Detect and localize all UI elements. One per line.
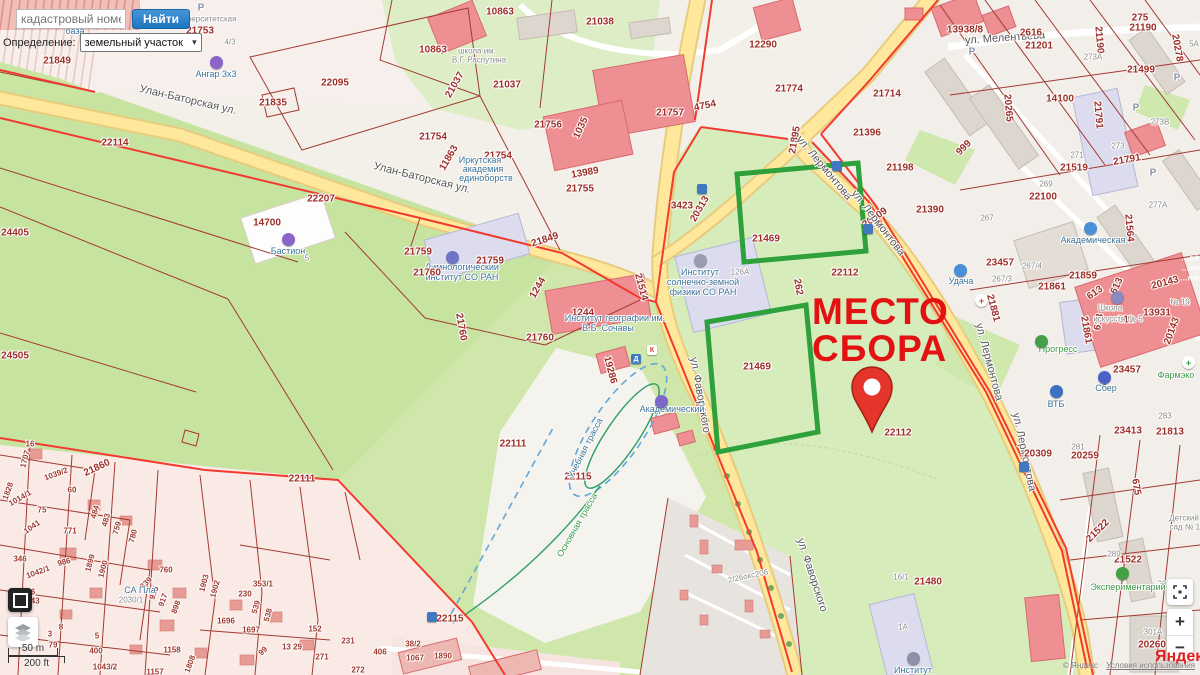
scale-meters: 50 m	[8, 648, 58, 656]
fullscreen-icon	[1173, 585, 1187, 599]
square-icon	[13, 593, 28, 608]
measure-tool-button[interactable]	[8, 588, 32, 612]
search-button[interactable]: Найти	[132, 9, 190, 29]
scale-feet: 200 ft	[8, 656, 65, 663]
map-canvas[interactable]	[0, 0, 1200, 675]
meeting-place-line2: СБОРА	[812, 330, 942, 367]
meeting-place-line1: МЕСТО	[812, 293, 942, 330]
chevron-down-icon: ▾	[192, 37, 197, 48]
filter-value: земельный участок	[85, 37, 183, 49]
fullscreen-button[interactable]	[1167, 579, 1193, 605]
zoom-in-button[interactable]: +	[1167, 609, 1193, 636]
map-page: УниверситетскаяРРРРР21753база4/321849Анг…	[0, 0, 1200, 675]
filter-label: Определение:	[3, 37, 76, 49]
filter-panel: Определение: земельный участок ▾	[3, 33, 202, 52]
scale-bar: 50 m 200 ft	[8, 648, 65, 663]
search-panel: Найти	[16, 9, 190, 29]
terms-link[interactable]: Условия использования	[1106, 661, 1195, 670]
copyright-text: © Яндекс	[1063, 661, 1098, 670]
layers-icon	[14, 623, 32, 641]
search-input[interactable]	[16, 9, 126, 29]
filter-select[interactable]: земельный участок ▾	[80, 33, 202, 52]
meeting-place-caption: МЕСТО СБОРА	[812, 293, 942, 367]
attribution: © Яндекс Условия использования	[1063, 661, 1195, 670]
